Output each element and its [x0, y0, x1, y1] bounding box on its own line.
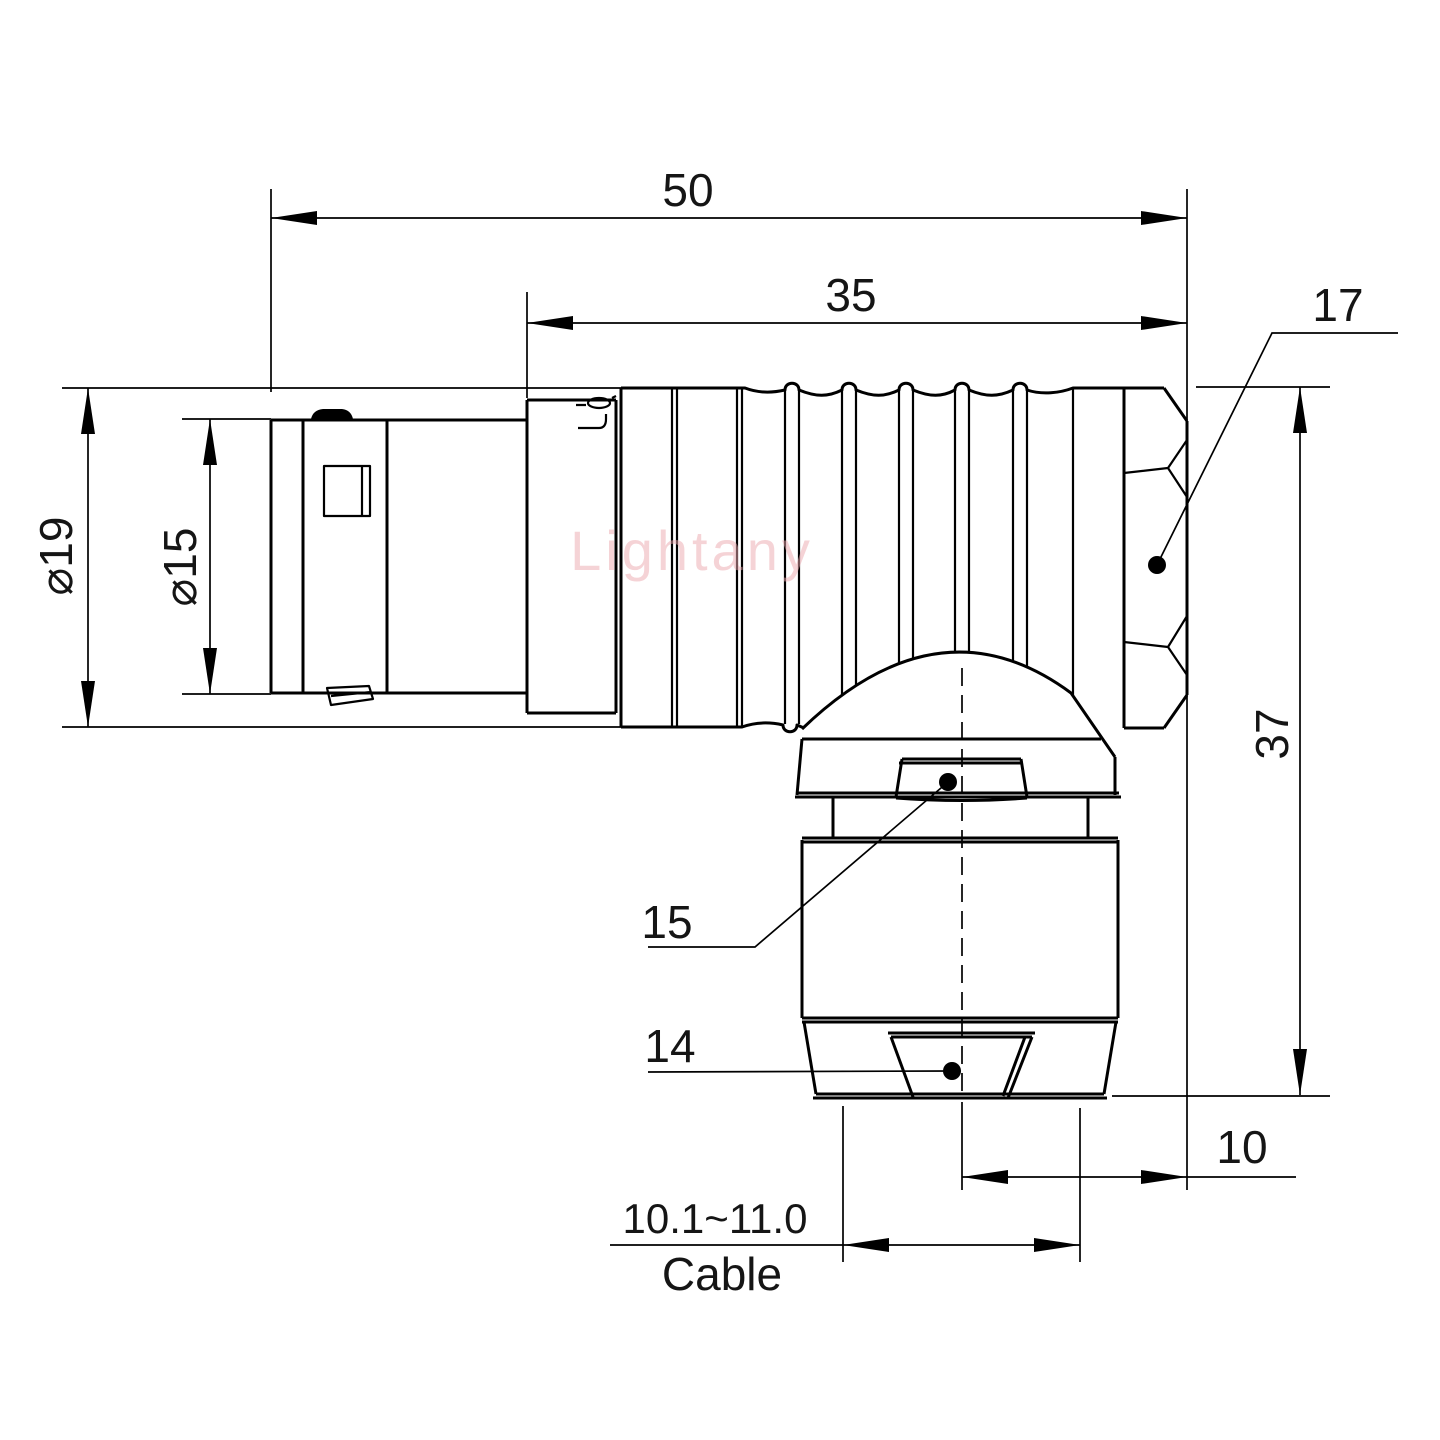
dim-text-50: 50 — [662, 164, 713, 216]
arrowhead-top — [81, 388, 95, 434]
leader-collet: 14 — [644, 1020, 961, 1080]
collet-bottom-edge — [813, 1094, 1107, 1098]
leader-line — [648, 782, 948, 947]
dim-text-15: 15 — [641, 896, 692, 948]
dimension-cable-range: 10.1~11.0 Cable — [610, 1106, 1080, 1300]
gland-bottom-edge — [802, 1018, 1118, 1022]
collet-left-edge — [804, 1022, 816, 1094]
rib-line — [842, 390, 856, 724]
arrowhead-right — [1034, 1238, 1080, 1252]
nose-bottom-key — [327, 686, 373, 705]
dim-text-17: 17 — [1312, 279, 1363, 331]
collet-right-edge — [1104, 1022, 1116, 1094]
arrowhead-right — [1141, 1170, 1187, 1184]
gland-top-edge — [802, 838, 1118, 842]
elbow-dome-fill — [802, 652, 1103, 741]
arrowhead-right — [1141, 316, 1187, 330]
dimension-offset: 10 — [962, 1121, 1296, 1184]
collar-left-edge — [797, 739, 802, 795]
dim-text-37: 37 — [1246, 708, 1298, 759]
drawing-canvas: Lightany 50 35 ⌀19 ⌀15 37 — [0, 0, 1440, 1440]
watermark-text: Lightany — [570, 519, 814, 582]
nose-top-seal — [311, 409, 353, 419]
dimension-height: 37 — [1112, 387, 1330, 1096]
leader-line — [1157, 333, 1398, 565]
elbow-lower-section — [795, 739, 1121, 1098]
leader-dot — [1148, 556, 1166, 574]
arrowhead-left — [962, 1170, 1008, 1184]
dim-text-35: 35 — [825, 269, 876, 321]
dim-text-14: 14 — [644, 1020, 695, 1072]
dimension-front-length: 35 — [527, 269, 1187, 398]
dim-text-dia19: ⌀19 — [30, 517, 82, 596]
dimension-front-diameter: ⌀15 — [154, 419, 217, 694]
dim-text-cable-range: 10.1~11.0 — [623, 1195, 808, 1242]
grip-top-profile — [621, 383, 1164, 395]
dim-text-dia15: ⌀15 — [154, 528, 206, 607]
arrowhead-left — [527, 316, 573, 330]
connector-side-view — [62, 383, 1187, 1190]
dimension-outer-diameter: ⌀19 — [30, 388, 95, 727]
nut-chamfer-top — [1164, 388, 1187, 421]
arrowhead-bottom — [81, 681, 95, 727]
dim-text-cable-word: Cable — [662, 1248, 782, 1300]
leader-dot — [939, 773, 957, 791]
arrowhead-left — [843, 1238, 889, 1252]
nut-chamfer-bottom — [1164, 695, 1187, 728]
arrowhead-right — [1141, 211, 1187, 225]
grip-bottom-profile — [621, 723, 804, 732]
nut-facet-line — [1124, 616, 1187, 675]
dim-text-10: 10 — [1216, 1121, 1267, 1173]
leader-dot — [943, 1062, 961, 1080]
arrowhead-bottom — [1293, 1049, 1307, 1095]
nut-facet-line — [1124, 440, 1187, 497]
arrowhead-left — [271, 211, 317, 225]
collar-bottom-edge — [795, 793, 1121, 797]
arrowhead-top — [1293, 387, 1307, 433]
technical-drawing: Lightany 50 35 ⌀19 ⌀15 37 — [0, 0, 1440, 1440]
arrowhead-bottom — [203, 648, 217, 694]
arrowhead-top — [203, 419, 217, 465]
